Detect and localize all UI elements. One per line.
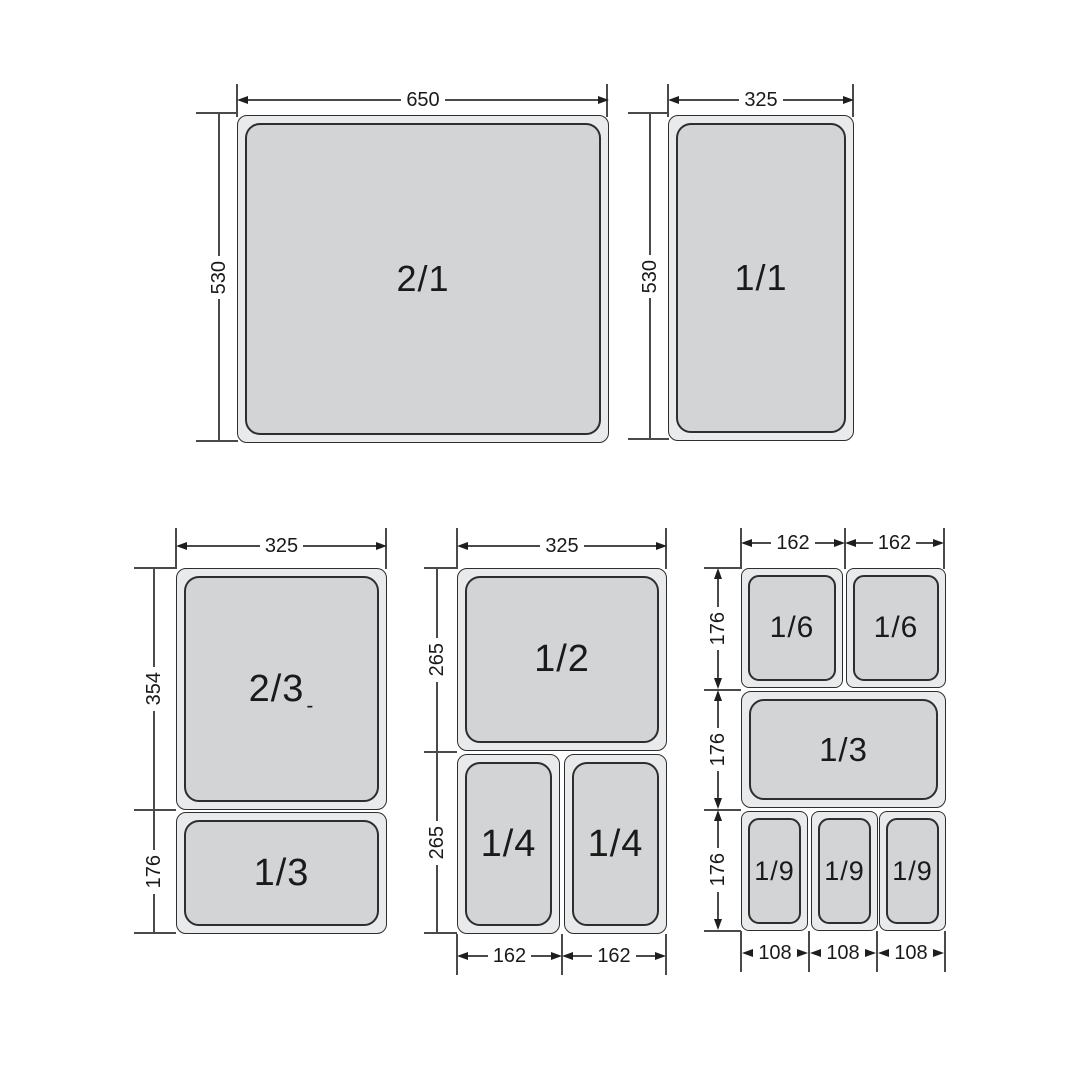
dim-line xyxy=(717,771,719,798)
pan-1-4-a: 1/4 xyxy=(457,754,560,934)
dim-line xyxy=(717,579,719,607)
dim-line xyxy=(531,955,551,957)
dim-width-162-quarter-a: 162 xyxy=(457,946,562,966)
dim-height-530-left: 530 xyxy=(208,114,230,441)
dim-line xyxy=(218,299,220,441)
dim-value: 162 xyxy=(592,946,635,966)
dim-line xyxy=(187,545,260,547)
pan-1-4-a-surface: 1/4 xyxy=(465,762,552,926)
dim-line xyxy=(445,99,598,101)
dim-line xyxy=(303,545,376,547)
dim-line xyxy=(649,298,651,439)
arrow-up-icon xyxy=(714,810,722,821)
dim-line xyxy=(636,955,655,957)
arrow-left-icon xyxy=(237,96,248,104)
pan-1-2: 1/2 xyxy=(457,568,667,751)
print-artifact: - xyxy=(306,694,314,718)
dim-line xyxy=(436,753,438,821)
arrow-down-icon xyxy=(714,678,722,689)
dim-line xyxy=(468,545,540,547)
arrow-left-icon xyxy=(668,96,679,104)
dim-value: 650 xyxy=(401,90,444,110)
arrow-right-icon xyxy=(933,949,944,957)
dim-value: 162 xyxy=(488,946,531,966)
dim-height-530-right: 530 xyxy=(639,114,661,439)
dim-line xyxy=(573,955,592,957)
dim-width-650: 650 xyxy=(237,90,609,110)
dim-value: 530 xyxy=(209,256,229,299)
dim-value: 162 xyxy=(873,533,916,553)
dim-width-108-b: 108 xyxy=(809,943,877,963)
arrow-left-icon xyxy=(176,542,187,550)
dim-value: 325 xyxy=(260,536,303,556)
dim-height-176-third-right: 176 xyxy=(707,690,729,809)
pan-1-9-c-label: 1/9 xyxy=(892,856,933,887)
dim-value: 108 xyxy=(753,943,796,963)
dim-line xyxy=(752,542,771,544)
arrow-left-icon xyxy=(742,949,753,957)
dim-value: 530 xyxy=(640,255,660,298)
pan-1-4-a-label: 1/4 xyxy=(481,823,537,866)
dim-width-108-c: 108 xyxy=(877,943,945,963)
dim-value: 176 xyxy=(708,607,728,650)
pan-1-6-a-label: 1/6 xyxy=(770,611,815,645)
pan-1-1: 1/1 xyxy=(668,115,854,441)
pan-1-6-b-label: 1/6 xyxy=(874,611,919,645)
dim-height-176-third-left: 176 xyxy=(143,811,165,933)
dim-line xyxy=(436,682,438,751)
arrow-right-icon xyxy=(797,949,808,957)
pan-1-9-b-surface: 1/9 xyxy=(818,818,871,924)
pan-2-3: 2/3- xyxy=(176,568,387,810)
pan-1-3-right: 1/3 xyxy=(741,691,946,808)
pan-1-4-b-surface: 1/4 xyxy=(572,762,659,926)
pan-1-1-surface: 1/1 xyxy=(676,123,846,433)
dim-line xyxy=(436,569,438,638)
dim-line xyxy=(783,99,843,101)
pan-1-2-label: 1/2 xyxy=(534,638,590,681)
extension-line xyxy=(704,930,741,932)
arrow-up-icon xyxy=(714,690,722,701)
arrow-up-icon xyxy=(714,568,722,579)
dim-value: 176 xyxy=(708,848,728,891)
dim-line xyxy=(468,955,488,957)
dim-value: 108 xyxy=(821,943,864,963)
dim-line xyxy=(584,545,656,547)
dim-width-108-a: 108 xyxy=(741,943,809,963)
dim-value: 162 xyxy=(771,533,814,553)
pan-1-3-left-label: 1/3 xyxy=(254,852,310,895)
dim-line xyxy=(218,114,220,256)
pan-1-9-c: 1/9 xyxy=(879,811,946,931)
dim-value: 325 xyxy=(739,90,782,110)
gastronorm-pan-size-diagram: 650 530 2/1 325 530 1/1 xyxy=(0,0,1080,1080)
arrow-left-icon xyxy=(810,949,821,957)
pan-2-1: 2/1 xyxy=(237,115,609,443)
pan-1-3-right-label: 1/3 xyxy=(819,731,868,769)
dim-line xyxy=(436,865,438,933)
dim-line xyxy=(856,542,873,544)
dim-line xyxy=(815,542,834,544)
arrow-left-icon xyxy=(457,542,468,550)
arrow-right-icon xyxy=(865,949,876,957)
dim-value: 108 xyxy=(889,943,932,963)
arrow-right-icon xyxy=(376,542,387,550)
dim-width-325-two-thirds: 325 xyxy=(176,536,387,556)
arrow-left-icon xyxy=(457,952,468,960)
dim-line xyxy=(717,892,719,919)
arrow-left-icon xyxy=(878,949,889,957)
arrow-right-icon xyxy=(598,96,609,104)
dim-value: 354 xyxy=(144,667,164,710)
pan-1-9-a: 1/9 xyxy=(741,811,808,931)
pan-1-3-right-surface: 1/3 xyxy=(749,699,938,800)
arrow-right-icon xyxy=(655,952,666,960)
arrow-left-icon xyxy=(562,952,573,960)
pan-1-9-b-label: 1/9 xyxy=(824,856,865,887)
dim-value: 265 xyxy=(427,821,447,864)
dim-line xyxy=(153,811,155,850)
dim-line xyxy=(679,99,739,101)
pan-1-9-b: 1/9 xyxy=(811,811,878,931)
arrow-right-icon xyxy=(843,96,854,104)
pan-2-3-label: 2/3- xyxy=(249,668,315,711)
pan-1-9-c-surface: 1/9 xyxy=(886,818,939,924)
pan-1-6-a-surface: 1/6 xyxy=(748,575,836,681)
dim-line xyxy=(153,711,155,809)
dim-line xyxy=(717,701,719,728)
dim-line xyxy=(916,542,933,544)
dim-height-354: 354 xyxy=(143,569,165,809)
pan-1-3-left-surface: 1/3 xyxy=(184,820,379,926)
dim-value: 325 xyxy=(540,536,583,556)
dim-width-162-sixth-b: 162 xyxy=(845,533,944,553)
dim-width-325-full: 325 xyxy=(668,90,854,110)
pan-1-9-a-surface: 1/9 xyxy=(748,818,801,924)
pan-2-3-surface: 2/3- xyxy=(184,576,379,802)
pan-1-1-label: 1/1 xyxy=(734,257,787,299)
arrow-down-icon xyxy=(714,919,722,930)
arrow-left-icon xyxy=(845,539,856,547)
pan-1-4-b-label: 1/4 xyxy=(588,823,644,866)
dim-width-162-sixth-a: 162 xyxy=(741,533,845,553)
dim-value: 265 xyxy=(427,638,447,681)
pan-1-6-a: 1/6 xyxy=(741,568,843,688)
arrow-left-icon xyxy=(741,539,752,547)
pan-1-9-a-label: 1/9 xyxy=(754,856,795,887)
arrow-right-icon xyxy=(551,952,562,960)
pan-1-6-b-surface: 1/6 xyxy=(853,575,939,681)
arrow-right-icon xyxy=(933,539,944,547)
dim-line xyxy=(248,99,401,101)
dim-line xyxy=(649,114,651,255)
dim-height-176-ninth: 176 xyxy=(707,810,729,930)
arrow-right-icon xyxy=(656,542,667,550)
pan-1-6-b: 1/6 xyxy=(846,568,946,688)
pan-2-1-label: 2/1 xyxy=(396,258,449,300)
arrow-right-icon xyxy=(834,539,845,547)
dim-width-162-quarter-b: 162 xyxy=(562,946,666,966)
dim-line xyxy=(717,650,719,678)
dim-height-265-bottom: 265 xyxy=(426,753,448,933)
pan-2-1-surface: 2/1 xyxy=(245,123,601,435)
dim-line xyxy=(717,821,719,848)
pan-1-4-b: 1/4 xyxy=(564,754,667,934)
dim-value: 176 xyxy=(708,728,728,771)
dim-width-325-half: 325 xyxy=(457,536,667,556)
pan-1-2-surface: 1/2 xyxy=(465,576,659,743)
pan-1-3-left: 1/3 xyxy=(176,812,387,934)
arrow-down-icon xyxy=(714,798,722,809)
dim-height-265-top: 265 xyxy=(426,569,448,751)
dim-value: 176 xyxy=(144,850,164,893)
dim-line xyxy=(153,894,155,933)
dim-line xyxy=(153,569,155,667)
dim-height-176-sixth: 176 xyxy=(707,568,729,689)
